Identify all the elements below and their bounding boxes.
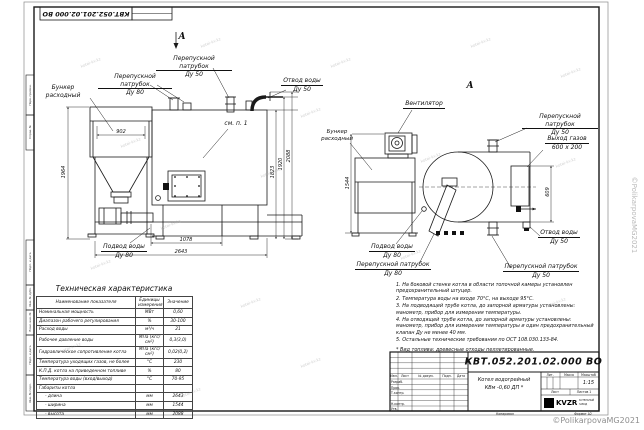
spec-cell: Температура воды (вход/выход) <box>37 375 136 384</box>
spec-cell: °С <box>136 358 164 367</box>
spec-cell: мм <box>136 410 164 419</box>
spec-cell: Габариты котла <box>37 384 136 393</box>
callout-gas-out: Выход газов 600 х 200 <box>540 135 594 151</box>
sign-row-label: Разраб. <box>391 380 403 384</box>
copyright-watermark-bottom: ©PolikarpovaMG2021 <box>538 416 640 425</box>
callout-text: Вентилятор <box>403 100 445 109</box>
callout-water-out-side: Отвод воды Ду 50 <box>534 229 584 245</box>
spec-row: - ширинамм1544 <box>37 401 193 410</box>
spec-cell: 1544 <box>164 401 193 410</box>
callout-text: Ду 50 <box>156 71 232 79</box>
spec-row: Рабочее давление водыМПа (кгс/см²)0,3(3,… <box>37 334 193 346</box>
spec-cell: 80 <box>164 367 193 376</box>
spec-row: Номинальная мощностьМВт0,60 <box>37 309 193 318</box>
callout-text: Бункер <box>318 129 356 136</box>
callout-text: Ду 80 <box>98 89 172 97</box>
callout-water-out: Отвод воды Ду 50 <box>278 77 326 93</box>
margin-stamp-label: Подп. и дата <box>28 345 32 364</box>
callout-text: Выход газов <box>545 135 588 144</box>
copied-label: Копировал <box>496 412 514 416</box>
title-block-scale-value: 1:15 <box>583 380 594 386</box>
callout-bypass-50: Перепускной патрубок Ду 50 <box>156 55 232 79</box>
margin-stamp-label: Справ. № <box>28 125 32 139</box>
spec-row: Температура уходящих газов, не более°С23… <box>37 358 193 367</box>
spec-row: Температура воды (вход/выход)°С70-95 <box>37 375 193 384</box>
dim-side-height: 1544 <box>345 177 351 190</box>
sign-row-label: Н.контр. <box>391 402 405 406</box>
callout-text: Подвод воды <box>101 243 147 252</box>
spec-cell: Расход воды <box>37 326 136 335</box>
margin-stamp-label: Инв. № подл. <box>28 383 32 402</box>
callout-text: Отвод воды <box>281 77 323 86</box>
callout-bypass-50-bottom: Перепускной патрубок Ду 50 <box>502 263 580 279</box>
drawing-sheet: КВТ.052.201.02.000 ВО Перв. примен. Спра… <box>0 0 644 430</box>
title-block-lit-header: Лит. <box>546 373 553 377</box>
spec-row: Расход водым³/ч21 <box>37 326 193 335</box>
title-block-mass-header: Масса <box>564 373 574 377</box>
rev-header: Изм. <box>390 374 397 378</box>
callout-text: см. п. 1 <box>215 120 257 128</box>
technical-notes: 1. На боковой стенке котла в области топ… <box>396 282 598 355</box>
spec-cell: Номинальная мощность <box>37 309 136 318</box>
callout-text: Ду 80 <box>98 252 150 260</box>
spec-header-row: Наименование показателя Единицы измерени… <box>37 297 193 309</box>
spec-table-title: Техническая характеристика <box>36 284 192 293</box>
callout-text: 600 х 200 <box>540 144 594 152</box>
callout-text: Ду 50 <box>502 272 580 280</box>
spec-cell: 70-95 <box>164 375 193 384</box>
spec-cell: % <box>136 317 164 326</box>
title-block-product-name: Котел водогрейный <box>478 377 531 383</box>
spec-cell: К.П.Д. котла на приведенном топливе <box>37 367 136 376</box>
callout-text: расходный <box>318 136 356 143</box>
rev-header: Подп. <box>442 374 451 378</box>
rev-header: Лист <box>401 374 409 378</box>
dim-bunker-height: 1964 <box>61 166 67 179</box>
sign-row-label: Утв. <box>391 407 398 411</box>
callout-bunker: Бункер расходный <box>36 84 90 99</box>
spec-cell: - высота <box>37 410 136 419</box>
callout-bypass-50-top: Перепускной патрубок Ду 50 <box>522 113 598 137</box>
spec-row: Диапазон рабочего регулирования%30-100 <box>37 317 193 326</box>
spec-cell: мм <box>136 401 164 410</box>
note-item: 3. На подводящей трубе котла, до запорно… <box>396 303 598 316</box>
spec-cell: МПа (кгс/см²) <box>136 334 164 346</box>
dim-gas-out-height: 609 <box>545 187 551 197</box>
title-block-sheets-label: Листов 1 <box>577 390 592 394</box>
callout-text: Перепускной патрубок <box>522 113 598 129</box>
callout-text: Ду 50 <box>534 238 584 246</box>
margin-stamp-label: Инв. № дубл. <box>28 287 32 306</box>
spec-cell: 0,02(0,2) <box>164 346 193 358</box>
spec-cell: 2088 <box>164 410 193 419</box>
corner-stamp-doc-number: КВТ.052.201.02.000 ВО <box>40 7 132 20</box>
spec-row: - длинамм2643 <box>37 393 193 402</box>
copyright-watermark-right: ©PolikarpovaMG2021 <box>630 177 638 254</box>
dim-total-length: 2643 <box>175 249 188 255</box>
spec-cell: °С <box>136 375 164 384</box>
callout-bypass-80-side: Перепускной патрубок Ду 80 <box>354 261 432 277</box>
spec-cell: Рабочее давление воды <box>37 334 136 346</box>
callout-text: Перепускной патрубок <box>503 263 580 272</box>
spec-cell: 0,3(3,0) <box>164 334 193 346</box>
rev-header: № докум. <box>418 374 433 378</box>
section-arrow-letter: А <box>178 32 185 42</box>
manufacturer-logo-sub: ЗАВОД <box>579 404 587 407</box>
spec-cell: - длина <box>37 393 136 402</box>
sign-row-label: Т.контр. <box>391 391 404 395</box>
callout-see-note: см. п. 1 <box>215 120 257 128</box>
spec-cell: МПа (кгс/см²) <box>136 346 164 358</box>
spec-cell: % <box>136 367 164 376</box>
note-item: 1. На боковой стенке котла в области топ… <box>396 282 598 295</box>
spec-cell: м³/ч <box>136 326 164 335</box>
callout-water-in: Подвод воды Ду 80 <box>98 243 150 259</box>
callout-text: Перепускной патрубок <box>156 55 232 71</box>
spec-cell: 30-100 <box>164 317 193 326</box>
spec-header-cell: Единицы измерения <box>136 297 164 309</box>
spec-cell: 0,60 <box>164 309 193 318</box>
spec-header-cell: Значение <box>164 297 193 309</box>
side-view-letter: А <box>466 81 473 91</box>
spec-cell: Диапазон рабочего регулирования <box>37 317 136 326</box>
manufacturer-logo: KVZR <box>556 399 577 407</box>
callout-text: Отвод воды <box>538 229 580 238</box>
margin-stamp-label: Взам. инв. № <box>28 313 32 332</box>
title-block-sheet-label: Лист <box>551 390 559 394</box>
spec-row: - высотамм2088 <box>37 410 193 419</box>
title-block-doc-number: КВТ.052.201.02.000 ВО <box>465 357 603 368</box>
note-item: 5. Остальные технические требования по О… <box>396 337 598 343</box>
dim-bunker-width: 902 <box>116 129 126 135</box>
spec-cell: 230 <box>164 358 193 367</box>
callout-text: Ду 80 <box>354 270 432 278</box>
callout-bunker-side: Бункер расходный <box>318 129 356 143</box>
spec-cell: Температура уходящих газов, не более <box>37 358 136 367</box>
callout-text: Перепускной патрубок <box>355 261 432 270</box>
sign-row-label: Пров. <box>391 386 400 390</box>
title-block-product-model: КВм -0,60 ДП * <box>485 385 524 391</box>
note-item: 2. Температура воды на входе 70°С, на вы… <box>396 296 598 302</box>
callout-text: расходный <box>36 92 90 100</box>
spec-row: К.П.Д. котла на приведенном топливе%80 <box>37 367 193 376</box>
spec-cell: Гидравлическое сопротивление котла <box>37 346 136 358</box>
spec-cell <box>136 384 164 393</box>
callout-text: Ду 50 <box>278 86 326 94</box>
note-item: 4. На отводящей трубе котла, до запорной… <box>396 317 598 336</box>
margin-stamp-label: Подп. и дата <box>28 252 32 271</box>
spec-header-cell: Наименование показателя <box>37 297 136 309</box>
spec-table: Наименование показателя Единицы измерени… <box>36 296 193 419</box>
callout-text: Бункер <box>36 84 90 92</box>
spec-row: Габариты котла <box>37 384 193 393</box>
title-block-scale-header: Масштаб <box>581 373 596 377</box>
note-fuel-type: * Вид топлива: древесные отходы пеллетир… <box>396 347 598 353</box>
dim-height-3: 2088 <box>286 150 292 163</box>
dim-base-length: 1078 <box>180 237 193 243</box>
rev-header: Дата <box>457 374 465 378</box>
callout-text: Подвод воды <box>369 243 415 252</box>
callout-fan: Вентилятор <box>398 100 450 109</box>
spec-cell: - ширина <box>37 401 136 410</box>
spec-cell: МВт <box>136 309 164 318</box>
spec-cell: 21 <box>164 326 193 335</box>
spec-cell: мм <box>136 393 164 402</box>
margin-stamp-label: Перв. примен. <box>28 85 32 106</box>
